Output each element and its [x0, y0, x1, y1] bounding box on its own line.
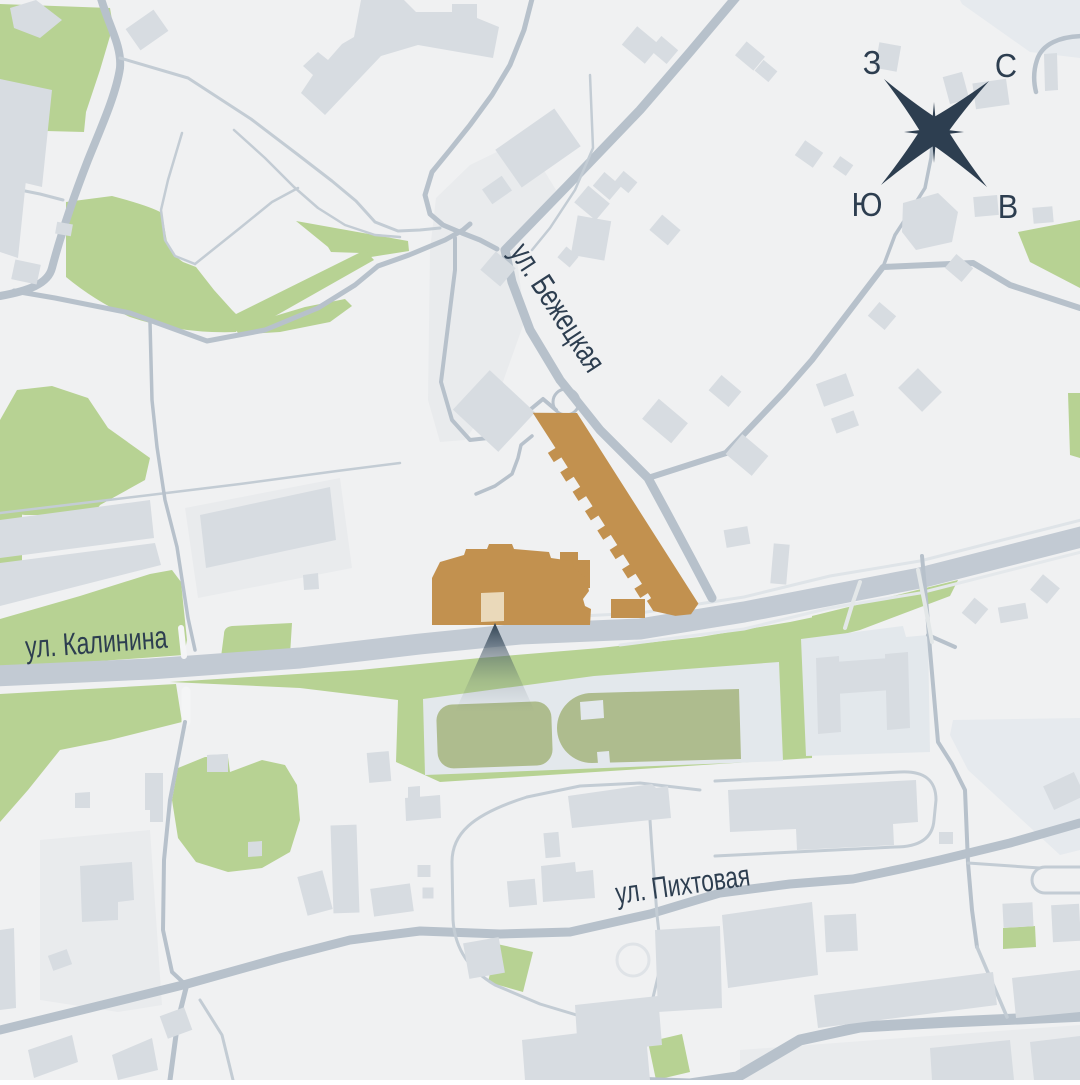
svg-text:Ю: Ю	[852, 186, 883, 223]
svg-text:В: В	[998, 188, 1018, 225]
svg-text:С: С	[995, 47, 1017, 84]
svg-text:З: З	[863, 44, 882, 81]
